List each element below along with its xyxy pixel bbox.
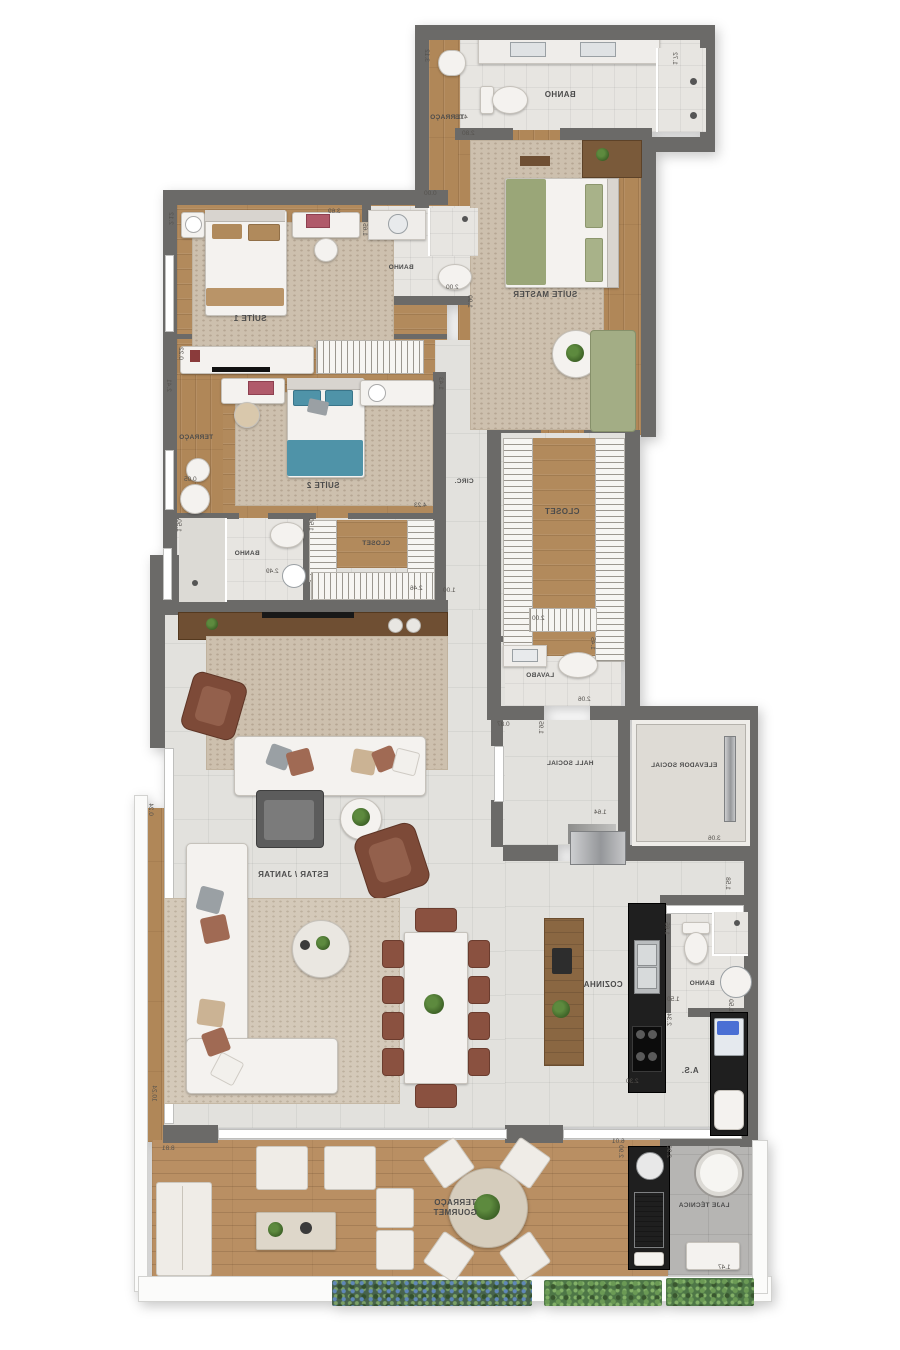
bar-sink [636, 1152, 664, 1180]
island-decor [552, 948, 572, 974]
dim-label: 0.87 [497, 721, 510, 728]
plant [596, 148, 609, 161]
shower-head-icon [734, 920, 740, 926]
dim-label: 1.65 [361, 223, 368, 236]
room-label-as: A.S. [672, 1066, 708, 1076]
headboard [205, 210, 285, 222]
plant [316, 936, 330, 950]
dining-chair [468, 1048, 490, 1076]
dim-label: 2.30 [626, 1078, 639, 1085]
shower [712, 912, 748, 956]
vanity-double [478, 36, 660, 64]
dim-label: 2.34 [665, 1013, 672, 1026]
desk-chair [314, 238, 338, 262]
dim-label: 2.90 [665, 1145, 672, 1158]
dim-label: 1.58 [724, 877, 731, 890]
burner [648, 1030, 657, 1039]
outdoor-armchair [376, 1230, 414, 1270]
dim-label: 2.06 [578, 696, 591, 703]
pillow [585, 184, 603, 228]
desk-decor [248, 381, 274, 395]
wall [616, 845, 756, 861]
dim-label: 2.12 [167, 212, 174, 225]
wall [150, 600, 165, 748]
sink-basin [388, 214, 408, 234]
double-door-hall [494, 746, 504, 802]
dim-label: 1.43 [437, 377, 444, 390]
plant [206, 618, 218, 630]
decor [520, 156, 550, 166]
window [165, 450, 174, 510]
wall [560, 128, 652, 140]
mirror [368, 384, 386, 402]
elevator-door [724, 736, 736, 822]
bbq-grill [634, 1192, 664, 1248]
dining-chair [468, 976, 490, 1004]
outdoor-table [180, 484, 210, 514]
dim-label: 2.00 [446, 284, 459, 291]
wall [491, 800, 503, 847]
room-label-closet-suite2: CLOSET [348, 540, 404, 548]
equipment [686, 1242, 740, 1270]
decor [300, 940, 310, 950]
laundry-basket [717, 1021, 739, 1035]
wall [590, 706, 756, 720]
floor-plan: SUÍTE 1 BANHO SUÍTE 2 TERRAÇO BANHO CLOS… [0, 0, 900, 1350]
room-label-estar: ESTAR / JANTAR [238, 870, 348, 880]
shower [179, 518, 227, 602]
dim-label: 1.47 [718, 1264, 731, 1271]
outdoor-sofa [156, 1182, 212, 1276]
window [165, 255, 174, 332]
hanging-rack [316, 340, 424, 374]
refrigerator [570, 831, 626, 865]
room-label-cozinha: COZINHA [572, 980, 634, 990]
plant [352, 808, 370, 826]
room-label-suite2: SUÍTE 2 [295, 481, 351, 491]
stool [438, 50, 466, 76]
kitchen-island [544, 918, 584, 1066]
dining-chair [382, 1048, 404, 1076]
dining-chair [468, 1012, 490, 1040]
room-label-banho-suite2: BANHO [224, 550, 270, 558]
dim-label: 2.90 [617, 1145, 624, 1158]
shower-head-icon [192, 580, 198, 586]
room-label-banho-master: BANHO [515, 90, 605, 100]
room-label-lavabo: LAVABO [512, 672, 568, 680]
lounge-chair [256, 1146, 308, 1190]
dining-chair [468, 940, 490, 968]
dining-chair [382, 976, 404, 1004]
wall [503, 845, 558, 861]
wall [625, 430, 640, 718]
toilet [684, 932, 708, 964]
sink-basin [580, 42, 616, 57]
dim-label: 0.24 [147, 803, 154, 816]
railing-west [134, 795, 148, 1292]
pillow [585, 238, 603, 282]
sofa-seam [182, 1186, 183, 1270]
wall [641, 137, 656, 437]
railing-east [752, 1140, 768, 1294]
shower-head-icon [462, 216, 468, 222]
dim-label: 2.46 [410, 585, 423, 592]
shower [428, 208, 478, 256]
dining-chair [382, 1012, 404, 1040]
dim-label: 0.22 [177, 347, 184, 360]
dim-label: 0.05 [184, 476, 197, 483]
tv [212, 367, 270, 372]
sink-basin [510, 42, 546, 57]
dim-label: 1.00 [443, 587, 456, 594]
room-label-banho-servico: BANHO [678, 980, 726, 988]
sink-basin [282, 564, 306, 588]
sliding-door-south [218, 1129, 507, 1139]
room-label-terraco-suite2: TERRAÇO [168, 434, 224, 442]
wall [415, 25, 715, 40]
wall [487, 428, 501, 718]
lamp [185, 216, 202, 233]
water-tank [694, 1148, 744, 1198]
bed-runner [206, 288, 284, 306]
dim-label: 1.50 [307, 518, 314, 531]
dim-label: 1.72 [671, 52, 678, 65]
dim-label: 3.69 [328, 208, 341, 215]
dim-label: 2.00 [532, 615, 545, 622]
dining-chair [382, 940, 404, 968]
pillow [200, 914, 231, 945]
dim-label: 1.50 [667, 996, 680, 1003]
sink-basin [512, 649, 538, 662]
burner [636, 1030, 645, 1039]
wall [505, 1125, 563, 1143]
dining-chair [415, 1084, 457, 1108]
room-label-closet-master: CLOSET [532, 507, 592, 517]
bed-throw-green [506, 179, 546, 285]
dim-label: 4.03 [455, 114, 468, 121]
room-label-terraco-gourmet: TERRAÇO GOURMET [418, 1198, 492, 1219]
decor [190, 350, 200, 362]
room-label-suite1: SUÍTE 1 [220, 314, 280, 324]
room-label-suite-master: SUÍTE MASTER [512, 290, 578, 300]
plant [424, 994, 444, 1014]
desk-decor [306, 214, 330, 228]
burner [648, 1052, 657, 1061]
desk-chair [234, 402, 260, 428]
sink-basin [637, 944, 657, 966]
bed-blanket-teal [287, 440, 363, 476]
room-label-elevador: ELEVADOR SOCIAL [648, 762, 720, 770]
dim-label: 3.06 [708, 835, 721, 842]
shower-master [656, 48, 706, 132]
shower-head-icon [690, 112, 697, 119]
dining-chair [415, 908, 457, 932]
dim-label: 1.64 [594, 809, 607, 816]
wardrobe-rack [595, 438, 625, 662]
laundry-sink [714, 1090, 744, 1130]
outdoor-armchair [376, 1188, 414, 1228]
hedge [544, 1280, 662, 1306]
pillow [248, 224, 280, 241]
wall [163, 1125, 218, 1143]
dim-label: 1.90 [466, 295, 473, 308]
dim-label: 1.45 [589, 637, 596, 650]
dim-label: 8.81 [162, 1145, 175, 1152]
burner [636, 1052, 645, 1061]
dim-label: 1.50 [727, 999, 734, 1012]
headboard [287, 378, 363, 390]
decor [300, 1222, 312, 1234]
plant [552, 1000, 570, 1018]
shelf [582, 140, 642, 178]
dim-label: 10.24 [151, 1085, 158, 1101]
lounge-chair-cushion [264, 800, 314, 840]
wall [348, 513, 445, 519]
plant [566, 344, 584, 362]
dim-label: 3.12 [423, 49, 430, 62]
dim-label: 1.95 [537, 721, 544, 734]
wall [163, 190, 448, 205]
dim-label: 2.49 [266, 568, 279, 575]
dim-label: 4.23 [414, 502, 427, 509]
hedge-flowers [332, 1280, 532, 1306]
dim-label: 1.50 [175, 519, 182, 532]
tv [262, 612, 354, 618]
room-label-circ: CIRC. [444, 478, 484, 486]
dim-label: 0.00 [424, 190, 437, 197]
window [163, 548, 172, 600]
room-label-laje: LAJE TÉCNICA [672, 1202, 736, 1210]
sink-basin [637, 967, 657, 989]
pillow [325, 390, 353, 406]
room-label-banho-suite1: BANHO [378, 264, 424, 272]
room-label-hall: HALL SOCIAL [540, 760, 600, 768]
dim-label: 1.65 [663, 922, 670, 935]
dim-label: 2.41 [165, 379, 172, 392]
toilet [270, 522, 304, 548]
headboard [607, 178, 619, 288]
hedge [666, 1278, 754, 1306]
shelf [634, 1252, 664, 1266]
decor [388, 618, 403, 633]
shower-head-icon [690, 78, 697, 85]
pillow [196, 998, 225, 1027]
bench-green [590, 330, 636, 432]
pillow [212, 224, 242, 239]
lounge-chair [324, 1146, 376, 1190]
plant [268, 1222, 283, 1237]
floor-plan-canvas: SUÍTE 1 BANHO SUÍTE 2 TERRAÇO BANHO CLOS… [0, 0, 900, 1350]
decor [406, 618, 421, 633]
dim-label: 2.80 [462, 130, 475, 137]
